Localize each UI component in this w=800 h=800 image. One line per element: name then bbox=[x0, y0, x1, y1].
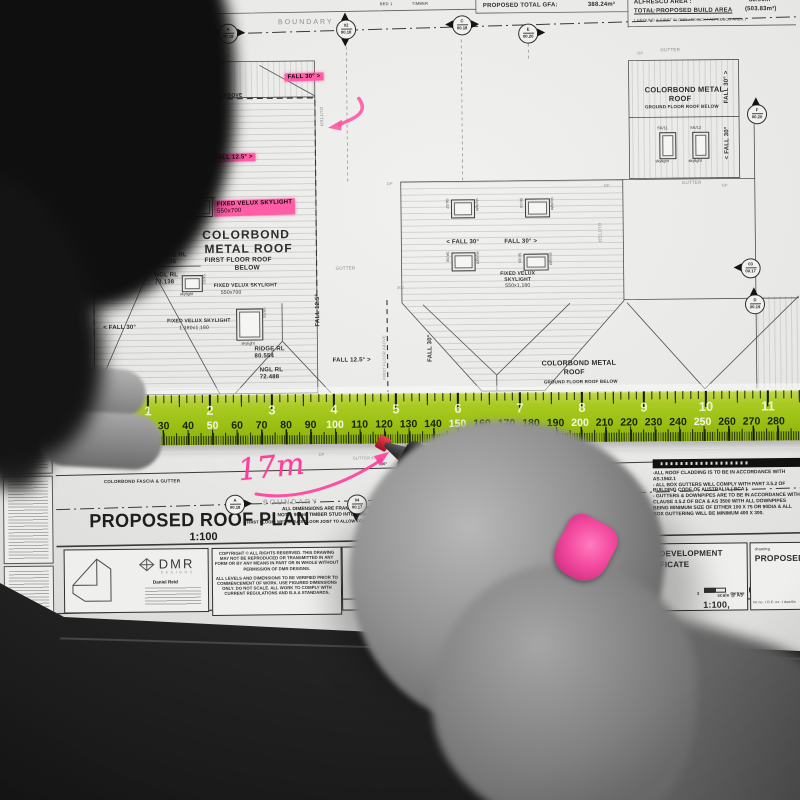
gutter-label-3: GUTTER bbox=[336, 265, 356, 270]
roof-note-3: - GUTTERS & DOWNPIPES ARE TO BE IN ACCOR… bbox=[653, 493, 800, 518]
roof-cladding-notes: -ALL ROOF CLADDING IS TO BE IN ACCORDANC… bbox=[653, 458, 800, 518]
gutter-label-1: GUTTER bbox=[319, 107, 324, 127]
fall-125-vertical: FALL 12.5° bbox=[315, 294, 321, 327]
skylight-caption: skylight bbox=[688, 158, 701, 163]
skylight-caption: skylight bbox=[550, 197, 554, 210]
gfr-title-2: ROOF bbox=[669, 94, 692, 103]
drawing-box: drawing PROPOSED lot no. I D.P. no. I dw… bbox=[750, 542, 800, 611]
skylight-sk02 bbox=[182, 275, 203, 292]
skylight-caption: skylight bbox=[180, 291, 193, 296]
boundary-label-bottom: BOUNDARY bbox=[263, 499, 319, 507]
dp-label-3: DP bbox=[604, 183, 610, 188]
velux-label-2: FIXED VELUX SKYLIGHT bbox=[214, 282, 278, 289]
first-floor-above-vertical: FIRST FLOOR ABOVE bbox=[381, 335, 386, 380]
skylight-caption: skylight bbox=[548, 252, 552, 265]
house-icon bbox=[71, 555, 138, 606]
skylight-caption: skylight bbox=[655, 158, 668, 163]
boundary-marker-a-bottom: A00.18 bbox=[225, 495, 245, 515]
fall-30-mid-right: FALL 30° > bbox=[504, 239, 537, 245]
skylight-code-sk09: SK/09 bbox=[517, 253, 521, 263]
drawing-label: drawing bbox=[755, 546, 770, 551]
gutter-label-5: GUTTER bbox=[660, 47, 680, 52]
colorbond-title-2: METAL ROOF bbox=[204, 241, 292, 256]
dmr-author-name: Daniel Reid bbox=[153, 579, 178, 584]
highlight-velux-skylight: FIXED VELUX SKYLIGHT550x700 bbox=[214, 198, 296, 217]
skylight-sk12 bbox=[692, 132, 709, 159]
velux-size-3: 1,180x1,180 bbox=[179, 325, 209, 331]
boundary-marker-02: 0200.18 bbox=[336, 19, 356, 39]
alfresco-label: ALFRESCO AREA : bbox=[634, 0, 692, 6]
fall-30-vertical-1: FALL 30° bbox=[427, 335, 433, 362]
skylight-caption: skylight bbox=[475, 251, 479, 264]
skylight-code-sk11: SK/11 bbox=[657, 125, 668, 130]
notes-header-bar bbox=[653, 458, 800, 469]
fall-125-label-2: FALL 12.5° > bbox=[333, 357, 371, 363]
gfa-value: 388.24m² bbox=[588, 2, 615, 8]
verify-paragraph: ALL LEVELS AND DIMENSIONS TO BE VERIFIED… bbox=[215, 574, 339, 596]
drawing-value: PROPOSED bbox=[755, 553, 800, 564]
alfresco-value: 33.00m² bbox=[749, 0, 773, 3]
fascia-note: COLORBOND FASCIA & GUTTER bbox=[104, 478, 180, 484]
gfa-label: PROPOSED TOTAL GFA: bbox=[483, 2, 558, 9]
skylight-code-sk07: SK/07 bbox=[445, 198, 449, 208]
skylight-sk08 bbox=[451, 252, 475, 271]
gfr2-title-2: ROOF bbox=[564, 369, 585, 376]
dmr-contact-lines bbox=[145, 587, 201, 606]
fall-30-box-bottom: < FALL 30° bbox=[724, 127, 730, 160]
ridge-rl-2-label: RIDGE RL bbox=[254, 346, 284, 352]
boundary-marker-f: F00.20 bbox=[747, 104, 767, 124]
skylight-caption: skylight bbox=[241, 341, 254, 346]
skylight-code-sk02: SK/02 bbox=[202, 274, 206, 284]
skylight-caption: skylight bbox=[475, 198, 479, 211]
build-area-value: (503.83m²) bbox=[745, 6, 777, 12]
gutter-label-6: GUTTER bbox=[682, 180, 702, 185]
gfr2-sub: GROUND FLOOR ROOF BELOW bbox=[544, 379, 618, 385]
skylight-code-sk03: SK/03 bbox=[262, 307, 266, 317]
lot-dp-dwelling-line: lot no. I D.P. no. I dwellin bbox=[753, 600, 796, 604]
copyright-box: COPYRIGHT © ALL RIGHTS RESERVED. THIS DR… bbox=[212, 547, 343, 616]
fall-30-mid-left: < FALL 30° bbox=[446, 239, 479, 245]
skylight-code-sk08: SK/08 bbox=[445, 251, 449, 261]
dp-label-2: DP bbox=[637, 50, 643, 55]
colorbond-sub-1: FIRST FLOOR ROOF bbox=[204, 256, 271, 264]
colorbond-sub-2: BELOW bbox=[235, 264, 260, 271]
dp-label-4: DP bbox=[722, 183, 728, 188]
dp-label-1: DP bbox=[387, 181, 393, 186]
skylight-sk07 bbox=[451, 199, 475, 218]
boundary-marker-e: E00.20 bbox=[518, 24, 538, 44]
dmr-box: DMR DESIGNS Daniel Reid bbox=[64, 548, 210, 614]
ngl-rl-2-value: 72.488 bbox=[260, 374, 280, 380]
skylight-code-sk10: SK/10 bbox=[519, 198, 523, 208]
gutter-fall-label: GUTTER FALL bbox=[353, 455, 382, 460]
page-scale: 1:100 bbox=[189, 531, 217, 543]
colorbond-title-1: COLORBOND bbox=[202, 227, 290, 242]
boundary-label-top: BOUNDARY bbox=[278, 19, 334, 27]
scale-value: 1:100, bbox=[703, 600, 730, 610]
velux-label-3: FIXED VELUX SKYLIGHT bbox=[167, 318, 231, 325]
annotation-17m: 17m bbox=[236, 447, 306, 489]
dim-300: 300 bbox=[397, 285, 404, 290]
skylight-sk03 bbox=[236, 308, 263, 340]
ngl-rl-2-label: NGL RL bbox=[260, 367, 283, 373]
boundary-marker-d: D00.19 bbox=[745, 294, 765, 314]
gfr-sub: GROUND FLOOR ROOF BELOW bbox=[645, 104, 719, 110]
fall-30-box-top: FALL 30° > bbox=[724, 71, 730, 104]
schedule-cell-timber: TIMBER bbox=[412, 1, 428, 6]
copyright-paragraph: COPYRIGHT © ALL RIGHTS RESERVED. THIS DR… bbox=[215, 550, 339, 572]
build-area-note: ( GROUND & FIRST FLOOR / PORCH / ALFRESC… bbox=[634, 17, 746, 22]
gutter-label-4: GUTTER bbox=[597, 223, 602, 243]
skylight-sk11 bbox=[659, 132, 676, 159]
velux-label-4: FIXED VELUXSKYLIGHT550x1,180 bbox=[495, 271, 541, 289]
ridge-rl-2-value: 80.554 bbox=[255, 353, 275, 359]
boundary-marker-03: 0300.17 bbox=[741, 258, 761, 278]
photo-scene: BED 1 TIMBER PROPOSED TOTAL GFA: 388.24m… bbox=[0, 0, 800, 800]
schedule-cell-bed1: BED 1 bbox=[380, 1, 393, 6]
scale-at-label: scale @ A3 bbox=[717, 592, 743, 597]
dmr-diamond-icon bbox=[139, 558, 155, 572]
dmr-designs-label: DESIGNS bbox=[161, 570, 195, 574]
gfr2-title-1: COLORBOND METAL bbox=[542, 360, 616, 368]
gutter-label-7: GUTTER bbox=[646, 8, 666, 13]
skylight-code-sk12: SK/12 bbox=[690, 125, 701, 130]
skylight-sk09 bbox=[523, 253, 548, 270]
fall-30-label-4: < FALL 30° bbox=[103, 325, 136, 331]
gfr-title-1: COLORBOND METAL bbox=[645, 85, 725, 95]
margin-notes-3 bbox=[4, 566, 54, 615]
velux-size-2: 550x700 bbox=[221, 290, 242, 296]
boundary-marker-c: C00.18 bbox=[452, 15, 472, 35]
highlight-fall-30: FALL 30° > bbox=[284, 72, 323, 81]
skylight-sk10 bbox=[525, 198, 550, 217]
